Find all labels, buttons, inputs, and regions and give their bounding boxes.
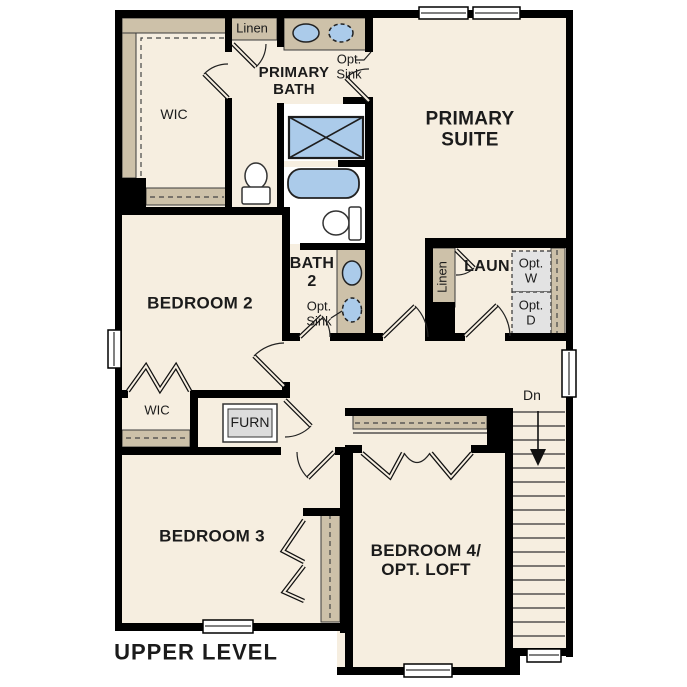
bathtub-icon	[288, 169, 359, 198]
label-stairs-dn: Dn	[523, 388, 541, 404]
window-bedroom2-left	[108, 330, 121, 368]
wic-shelf-top	[122, 18, 226, 33]
laundry-shelf-right	[551, 248, 565, 335]
shower-icon	[289, 117, 363, 158]
window-stair-right	[562, 350, 576, 397]
label-linen-laundry: Linen	[436, 261, 451, 293]
label-bedroom-2: BEDROOM 2	[147, 293, 253, 312]
label-primary-bath: PRIMARY BATH	[259, 65, 330, 99]
label-opt-sink-bath2: Opt. Sink	[306, 299, 331, 328]
label-linen-top: Linen	[236, 22, 268, 37]
label-opt-sink-top: Opt. Sink	[336, 52, 361, 81]
label-bedroom-3: BEDROOM 3	[159, 526, 265, 545]
wic-shelf-left	[122, 33, 136, 178]
label-primary-suite: PRIMARY SUITE	[425, 109, 514, 152]
label-bedroom-4: BEDROOM 4/ OPT. LOFT	[371, 541, 482, 579]
label-furnace: FURN	[231, 415, 270, 431]
window-stair-bottom	[527, 649, 561, 662]
label-opt-dryer: Opt. D	[519, 298, 544, 327]
bedroom4-closet-shelf	[353, 415, 487, 429]
floor-plan-upper-level: Linen WIC PRIMARY BATH Opt. Sink PRIMARY…	[0, 0, 687, 687]
window-top-left	[419, 7, 468, 19]
label-opt-washer: Opt. W	[519, 256, 544, 285]
label-wic-lower: WIC	[144, 404, 169, 419]
sink-icon-bath2-optional	[343, 298, 362, 322]
floor-plan-drawing	[0, 0, 687, 687]
label-bath-2: BATH 2	[290, 255, 334, 291]
toilet-icon-water-closet	[242, 163, 270, 204]
sink-icon-bath2	[343, 261, 362, 285]
label-wic-primary: WIC	[160, 107, 187, 123]
window-bedroom3-bottom	[203, 620, 253, 633]
window-top-right	[473, 7, 520, 19]
label-laundry: LAUN	[464, 258, 510, 276]
page-title: UPPER LEVEL	[114, 641, 278, 666]
window-bedroom4-bottom	[404, 664, 452, 677]
sink-icon-primary	[293, 24, 319, 42]
sink-icon-primary-optional	[329, 24, 353, 42]
